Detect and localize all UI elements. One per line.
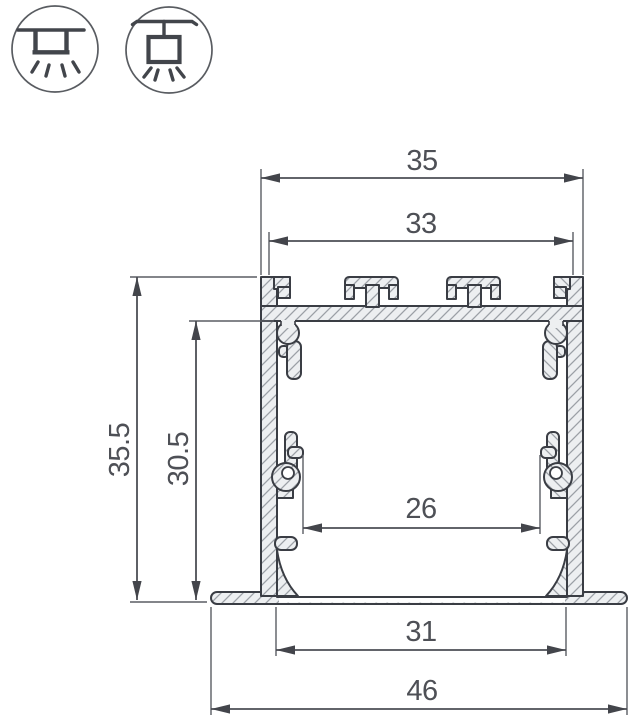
dim-outer-height: 35.5 bbox=[104, 423, 136, 477]
dim-inner-height: 30.5 bbox=[163, 432, 195, 486]
right-wall bbox=[567, 277, 583, 596]
dim-inner-width: 26 bbox=[405, 493, 436, 525]
surface-mount-icon bbox=[126, 7, 212, 93]
channel-cavity bbox=[277, 321, 567, 597]
dim-bottom-body-width: 31 bbox=[405, 616, 436, 648]
legend-circle bbox=[12, 6, 98, 92]
technical-drawing-page: 35 33 35.5 30.5 26 31 46 bbox=[0, 0, 636, 720]
light-rays-icon bbox=[32, 62, 79, 76]
dim-bottom-flange-width: 46 bbox=[406, 675, 437, 707]
top-plate bbox=[261, 306, 583, 321]
profile-drawing-svg: 35 33 35.5 30.5 26 31 46 bbox=[0, 0, 636, 720]
t-slot-rib bbox=[345, 277, 398, 307]
wall-hook-lower bbox=[275, 537, 297, 550]
light-rays-icon bbox=[144, 68, 184, 80]
dim-top-inner-width: 33 bbox=[405, 208, 436, 240]
left-wall bbox=[261, 277, 277, 596]
recessed-mount-icon bbox=[12, 6, 98, 92]
mounting-type-legend bbox=[12, 6, 212, 93]
dim-top-outer-width: 35 bbox=[406, 145, 437, 177]
profile-cross-section bbox=[211, 277, 627, 604]
